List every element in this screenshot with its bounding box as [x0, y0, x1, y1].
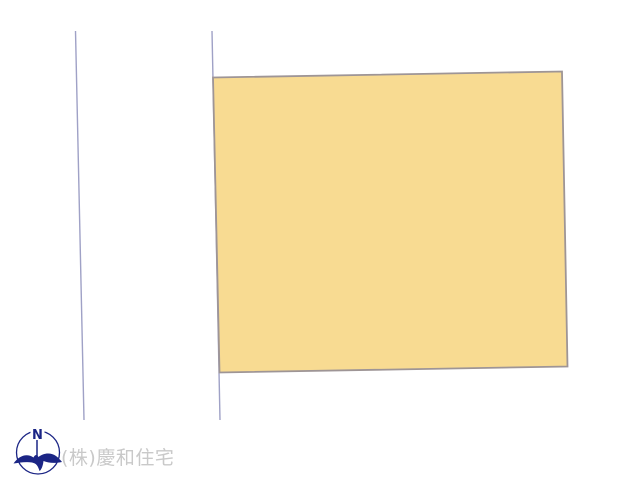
north-compass-icon: N — [14, 427, 63, 475]
site-plan-drawing: N — [0, 0, 640, 480]
company-watermark: (株)慶和住宅 — [61, 446, 174, 470]
road-edge-line-left — [76, 31, 85, 420]
land-parcel — [213, 72, 568, 373]
site-plan-canvas: N (株)慶和住宅 — [0, 0, 640, 480]
compass-bird-shape — [14, 453, 63, 471]
